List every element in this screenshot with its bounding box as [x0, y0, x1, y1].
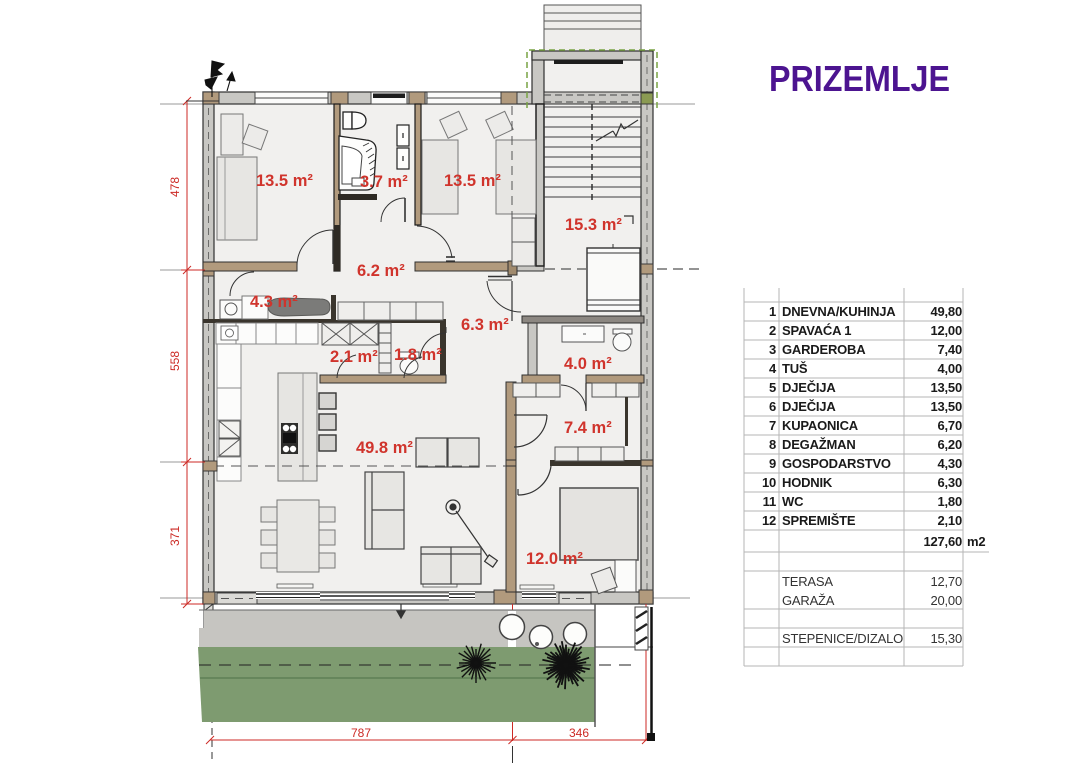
- svg-text:WC: WC: [782, 494, 804, 509]
- svg-text:9: 9: [769, 456, 776, 471]
- svg-text:3.7 m²: 3.7 m²: [360, 173, 408, 191]
- svg-text:1,80: 1,80: [937, 494, 962, 509]
- svg-text:DEGAŽMAN: DEGAŽMAN: [782, 437, 856, 452]
- svg-text:15,30: 15,30: [930, 631, 962, 646]
- svg-text:11: 11: [763, 494, 776, 509]
- svg-text:6,70: 6,70: [937, 418, 962, 433]
- svg-text:8: 8: [769, 437, 776, 452]
- svg-text:12: 12: [762, 513, 776, 528]
- svg-text:4,00: 4,00: [937, 361, 962, 376]
- svg-text:2: 2: [769, 323, 776, 338]
- svg-text:6.2 m²: 6.2 m²: [357, 262, 405, 280]
- svg-text:4,30: 4,30: [937, 456, 962, 471]
- svg-text:GARAŽA: GARAŽA: [782, 593, 835, 608]
- svg-text:20,00: 20,00: [930, 593, 962, 608]
- svg-text:787: 787: [351, 726, 371, 740]
- svg-text:m2: m2: [967, 534, 985, 549]
- svg-text:3: 3: [769, 342, 776, 357]
- svg-text:15.3 m²: 15.3 m²: [565, 216, 622, 234]
- svg-text:DJEČIJA: DJEČIJA: [782, 380, 836, 395]
- svg-text:TUŠ: TUŠ: [782, 361, 808, 376]
- svg-text:13,50: 13,50: [930, 399, 962, 414]
- svg-text:7.4 m²: 7.4 m²: [564, 419, 612, 437]
- svg-text:STEPENICE/DIZALO: STEPENICE/DIZALO: [782, 631, 903, 646]
- svg-text:127,60: 127,60: [923, 534, 962, 549]
- svg-text:GOSPODARSTVO: GOSPODARSTVO: [782, 456, 891, 471]
- svg-text:4.3 m²: 4.3 m²: [250, 293, 298, 311]
- svg-text:6,30: 6,30: [937, 475, 962, 490]
- svg-text:TERASA: TERASA: [782, 574, 833, 589]
- svg-text:13.5 m²: 13.5 m²: [256, 172, 313, 190]
- svg-text:12,70: 12,70: [930, 574, 962, 589]
- svg-text:2.1 m²: 2.1 m²: [330, 348, 378, 366]
- svg-text:13.5 m²: 13.5 m²: [444, 172, 501, 190]
- svg-text:KUPAONICA: KUPAONICA: [782, 418, 859, 433]
- svg-text:SPREMIŠTE: SPREMIŠTE: [782, 513, 856, 528]
- svg-text:346: 346: [569, 726, 589, 740]
- svg-text:1.8 m²: 1.8 m²: [394, 346, 442, 364]
- svg-text:DNEVNA/KUHINJA: DNEVNA/KUHINJA: [782, 304, 896, 319]
- svg-text:DJEČIJA: DJEČIJA: [782, 399, 836, 414]
- svg-text:371: 371: [168, 526, 182, 546]
- svg-text:7,40: 7,40: [937, 342, 962, 357]
- svg-text:49.8 m²: 49.8 m²: [356, 439, 413, 457]
- svg-text:4.0 m²: 4.0 m²: [564, 355, 612, 373]
- svg-text:PRIZEMLJE: PRIZEMLJE: [769, 58, 950, 99]
- svg-text:5: 5: [769, 380, 776, 395]
- svg-text:1: 1: [769, 304, 776, 319]
- svg-text:13,50: 13,50: [930, 380, 962, 395]
- svg-text:49,80: 49,80: [930, 304, 962, 319]
- svg-text:478: 478: [168, 177, 182, 197]
- svg-text:2,10: 2,10: [937, 513, 962, 528]
- svg-text:HODNIK: HODNIK: [782, 475, 833, 490]
- svg-text:6.3 m²: 6.3 m²: [461, 316, 509, 334]
- svg-text:12,00: 12,00: [930, 323, 962, 338]
- svg-text:6,20: 6,20: [937, 437, 962, 452]
- svg-text:12.0 m²: 12.0 m²: [526, 550, 583, 568]
- svg-text:GARDEROBA: GARDEROBA: [782, 342, 866, 357]
- svg-text:SPAVAĆA 1: SPAVAĆA 1: [782, 323, 851, 338]
- svg-text:7: 7: [769, 418, 776, 433]
- svg-text:4: 4: [769, 361, 777, 376]
- svg-text:6: 6: [769, 399, 776, 414]
- svg-text:10: 10: [762, 475, 776, 490]
- svg-text:558: 558: [168, 351, 182, 371]
